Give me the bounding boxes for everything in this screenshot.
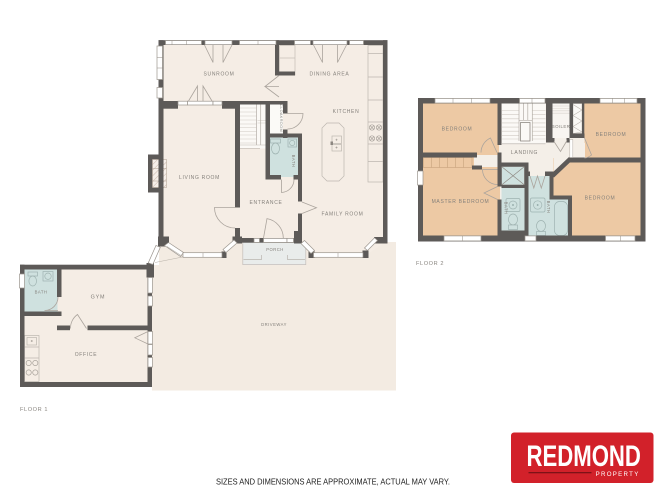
svg-text:PROPERTY: PROPERTY (596, 471, 640, 478)
svg-text:BATH: BATH (35, 290, 48, 295)
svg-text:GYM: GYM (91, 295, 106, 301)
svg-text:BEDROOM: BEDROOM (596, 132, 627, 138)
svg-text:KITCHEN: KITCHEN (333, 109, 360, 115)
svg-text:BEDROOM: BEDROOM (442, 127, 473, 133)
svg-text:REDMOND: REDMOND (526, 440, 641, 473)
svg-text:MASTER BEDROOM: MASTER BEDROOM (432, 199, 490, 205)
svg-text:LIVING ROOM: LIVING ROOM (179, 175, 220, 181)
svg-text:SUNROOM: SUNROOM (203, 72, 234, 78)
svg-text:DINING AREA: DINING AREA (310, 72, 350, 78)
svg-text:BEDROOM: BEDROOM (585, 196, 616, 202)
svg-text:SIZES AND DIMENSIONS ARE APPRO: SIZES AND DIMENSIONS ARE APPROXIMATE, AC… (216, 477, 450, 486)
svg-text:OFFICE: OFFICE (75, 352, 98, 358)
svg-text:BATH: BATH (503, 202, 508, 215)
svg-text:LANDING: LANDING (511, 150, 538, 156)
svg-text:ENTRANCE: ENTRANCE (249, 200, 282, 206)
svg-text:BOILER: BOILER (552, 124, 571, 129)
svg-text:BATH: BATH (546, 201, 551, 214)
svg-text:FAMILY ROOM: FAMILY ROOM (322, 212, 364, 218)
svg-text:FLOOR 1: FLOOR 1 (20, 407, 48, 413)
svg-text:PORCH: PORCH (266, 247, 284, 252)
svg-text:FLOOR 2: FLOOR 2 (416, 261, 444, 267)
svg-text:DRIVEWAY: DRIVEWAY (261, 322, 287, 327)
svg-text:BATH: BATH (291, 155, 296, 168)
